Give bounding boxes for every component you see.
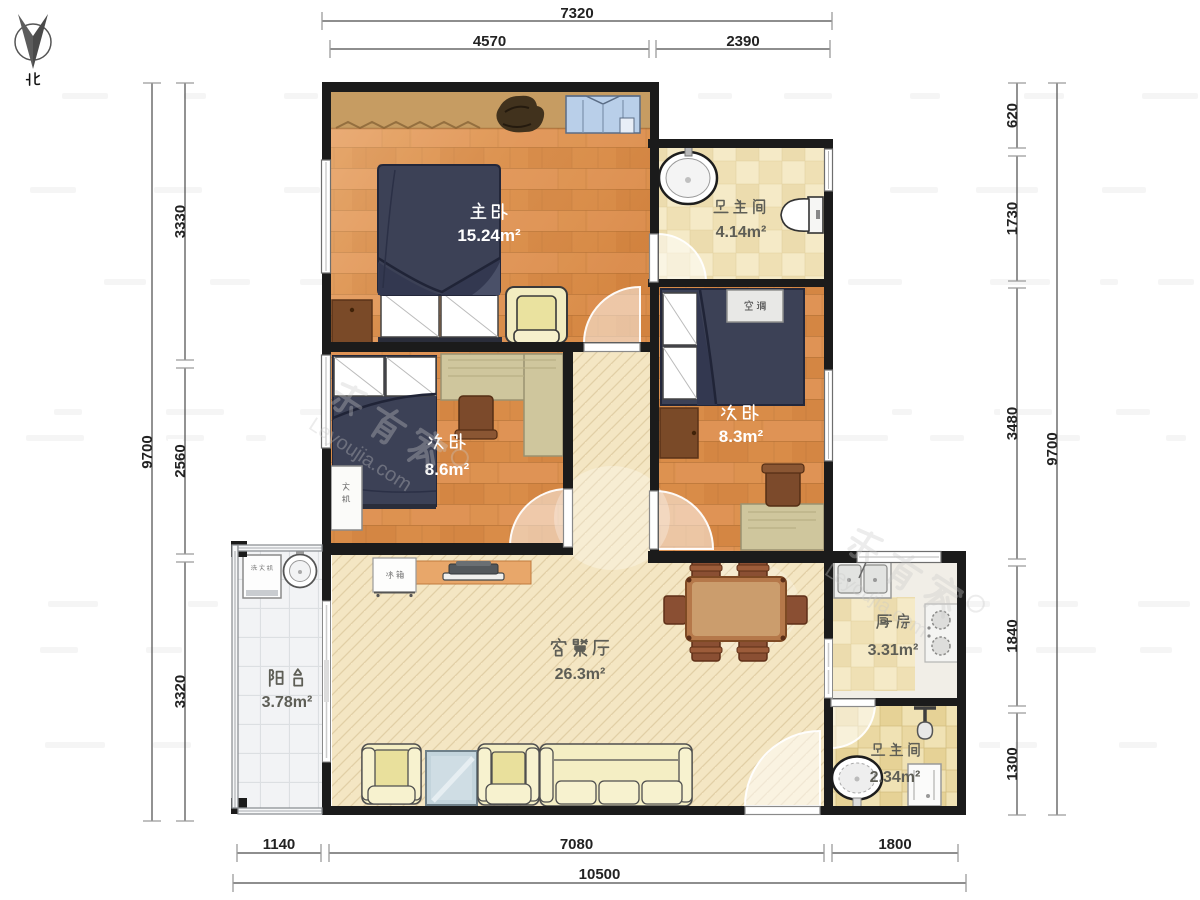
svg-text:2390: 2390 bbox=[726, 33, 759, 50]
svg-text:3.31m²: 3.31m² bbox=[868, 642, 919, 659]
svg-text:2.34m²: 2.34m² bbox=[870, 769, 921, 786]
svg-text:9700: 9700 bbox=[139, 435, 156, 468]
svg-text:1840: 1840 bbox=[1004, 619, 1021, 652]
svg-text:7320: 7320 bbox=[560, 5, 593, 22]
svg-text:10500: 10500 bbox=[579, 866, 621, 883]
svg-text:3330: 3330 bbox=[172, 205, 189, 238]
svg-text:2560: 2560 bbox=[172, 444, 189, 477]
svg-text:9700: 9700 bbox=[1044, 432, 1061, 465]
svg-text:8.3m²: 8.3m² bbox=[719, 427, 764, 446]
svg-text:1300: 1300 bbox=[1004, 747, 1021, 780]
svg-text:3.78m²: 3.78m² bbox=[262, 694, 313, 711]
svg-text:1140: 1140 bbox=[263, 836, 296, 853]
svg-text:620: 620 bbox=[1004, 103, 1021, 128]
svg-text:7080: 7080 bbox=[560, 836, 593, 853]
svg-text:4.14m²: 4.14m² bbox=[716, 224, 767, 241]
svg-text:15.24m²: 15.24m² bbox=[457, 226, 521, 245]
svg-text:3480: 3480 bbox=[1004, 407, 1021, 440]
svg-text:4570: 4570 bbox=[473, 33, 506, 50]
svg-text:3320: 3320 bbox=[172, 675, 189, 708]
svg-text:1730: 1730 bbox=[1004, 202, 1021, 235]
svg-text:26.3m²: 26.3m² bbox=[555, 666, 606, 683]
svg-text:1800: 1800 bbox=[878, 836, 911, 853]
